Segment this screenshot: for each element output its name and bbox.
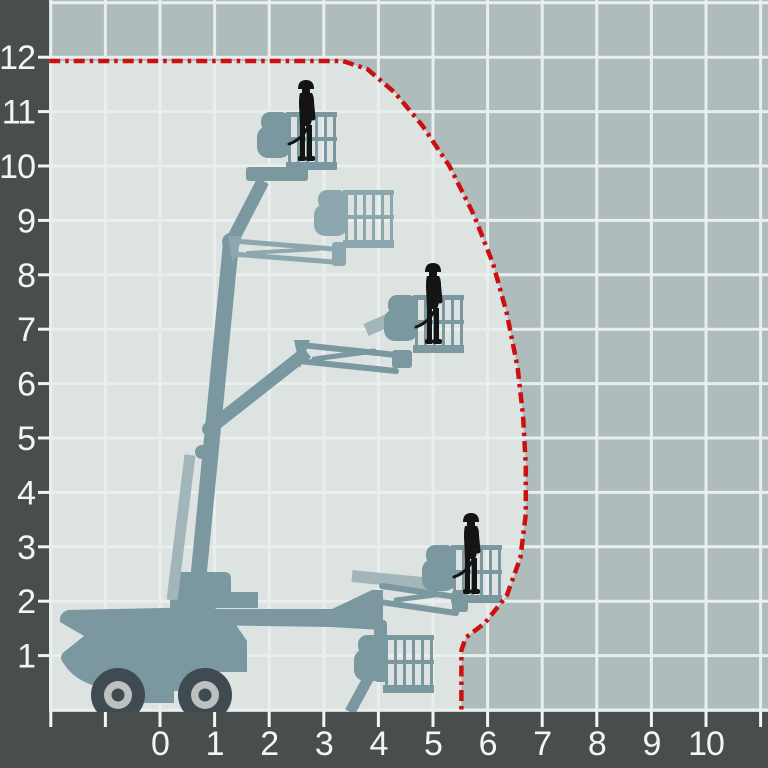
- y-tick: [38, 491, 49, 494]
- y-tick: [38, 165, 49, 168]
- x-tick-label: 4: [369, 725, 387, 763]
- x-tick-label: 2: [260, 725, 278, 763]
- y-tick: [38, 654, 49, 657]
- x-tick: [759, 712, 762, 727]
- y-tick-label: 5: [17, 420, 35, 458]
- y-tick: [38, 273, 49, 276]
- x-tick-label: 8: [588, 725, 606, 763]
- x-tick-label: 7: [533, 725, 551, 763]
- x-tick-label: 9: [642, 725, 660, 763]
- x-tick: [49, 712, 52, 727]
- x-tick-label: 6: [479, 725, 497, 763]
- x-tick-label: 5: [424, 725, 442, 763]
- y-tick-label: 11: [2, 94, 35, 132]
- y-tick: [38, 219, 49, 222]
- x-tick-label: 10: [688, 725, 724, 763]
- y-tick-label: 12: [0, 39, 35, 77]
- y-tick-label: 1: [17, 638, 35, 676]
- x-tick-label: 0: [151, 725, 169, 763]
- y-tick: [38, 545, 49, 548]
- y-tick-label: 4: [17, 474, 35, 512]
- y-tick: [38, 56, 49, 59]
- x-tick-label: 3: [315, 725, 333, 763]
- y-tick: [38, 382, 49, 385]
- y-tick-label: 9: [17, 202, 35, 240]
- jib-joint: [202, 422, 216, 436]
- x-tick-label: 1: [206, 725, 224, 763]
- y-tick: [38, 110, 49, 113]
- boom-knuckle: [195, 445, 209, 459]
- y-tick-label: 2: [17, 583, 35, 621]
- working-envelope-chart: 012345678910123456789101112: [0, 0, 768, 768]
- y-tick-label: 10: [0, 148, 35, 186]
- y-tick-label: 8: [17, 257, 35, 295]
- x-tick: [104, 712, 107, 727]
- y-tick: [38, 437, 49, 440]
- y-tick-label: 7: [17, 311, 35, 349]
- y-tick: [38, 328, 49, 331]
- y-tick-label: 6: [17, 366, 35, 404]
- y-tick: [38, 600, 49, 603]
- working-envelope-diagram: 012345678910123456789101112: [0, 0, 768, 768]
- y-tick-label: 3: [17, 529, 35, 567]
